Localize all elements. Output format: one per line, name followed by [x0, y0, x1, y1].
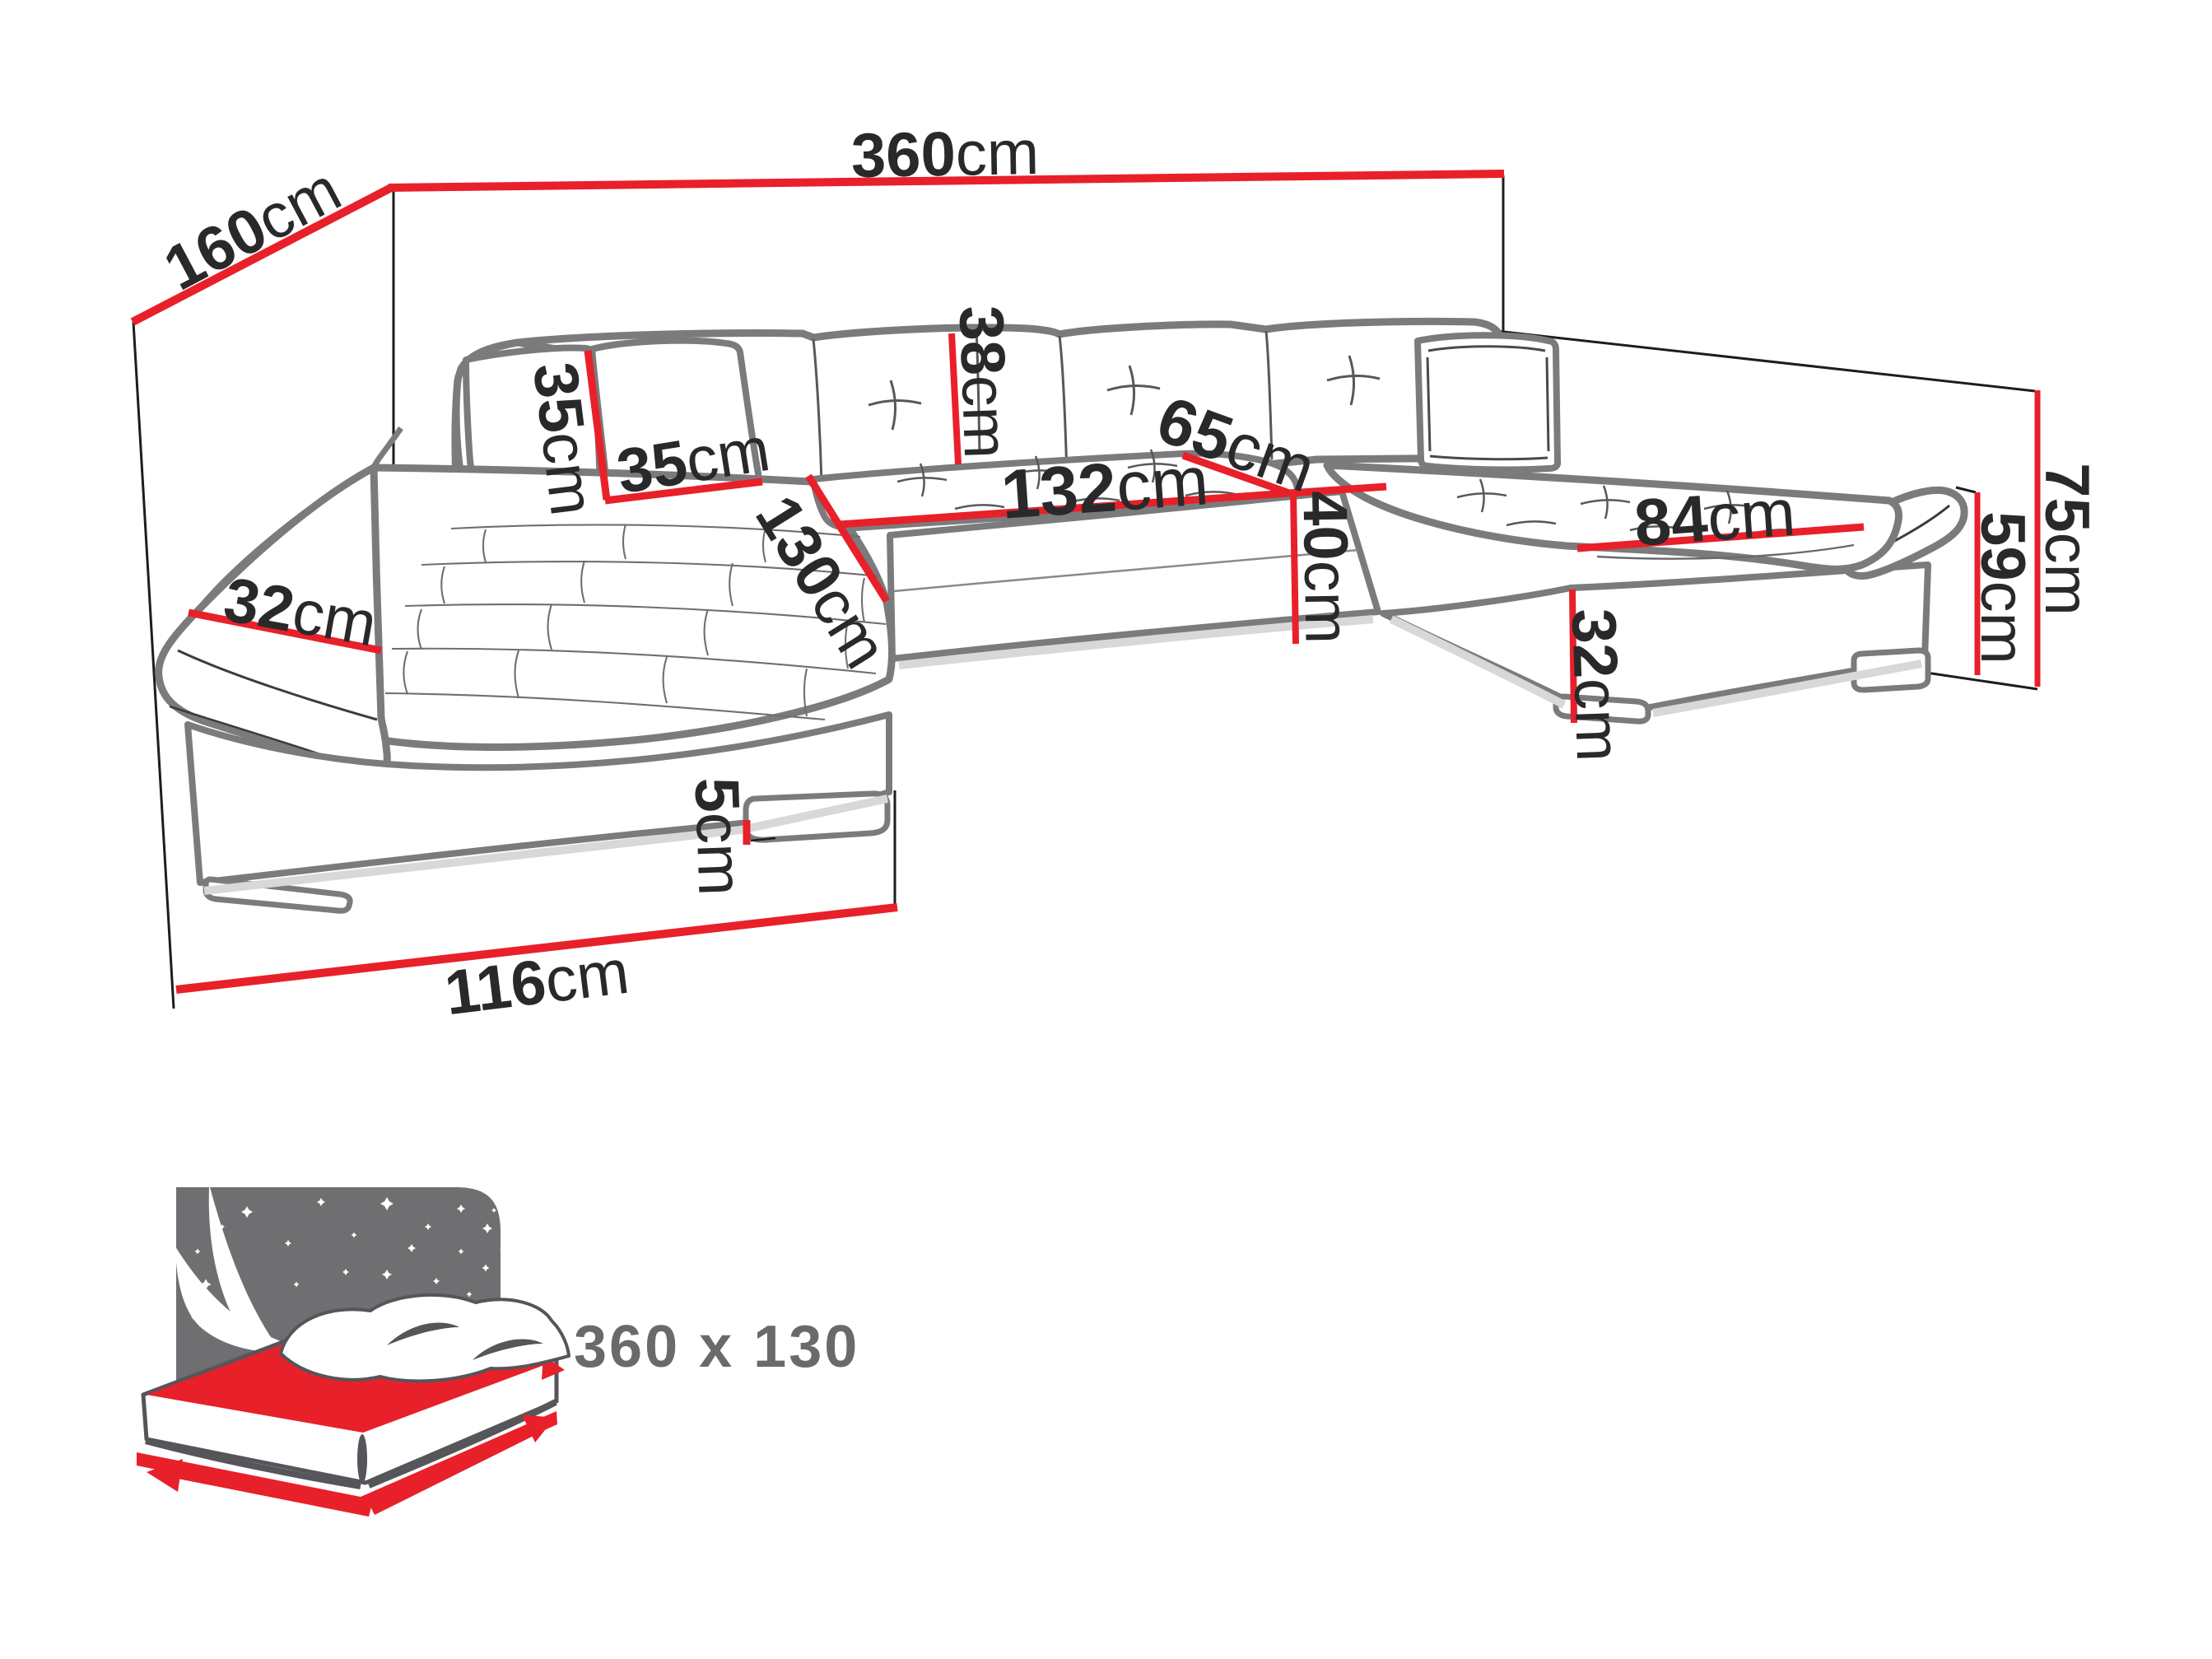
svg-text:40cm: 40cm: [1289, 490, 1362, 644]
svg-text:84cm: 84cm: [1632, 475, 1797, 559]
svg-text:360 x 130: 360 x 130: [574, 1314, 859, 1380]
svg-text:75cm: 75cm: [2032, 463, 2102, 616]
svg-text:360cm: 360cm: [850, 118, 1040, 191]
svg-text:38cm: 38cm: [946, 305, 1021, 460]
svg-text:59cm: 59cm: [1968, 511, 2037, 664]
svg-text:5cm: 5cm: [682, 776, 756, 897]
svg-text:32cm: 32cm: [1558, 608, 1633, 763]
